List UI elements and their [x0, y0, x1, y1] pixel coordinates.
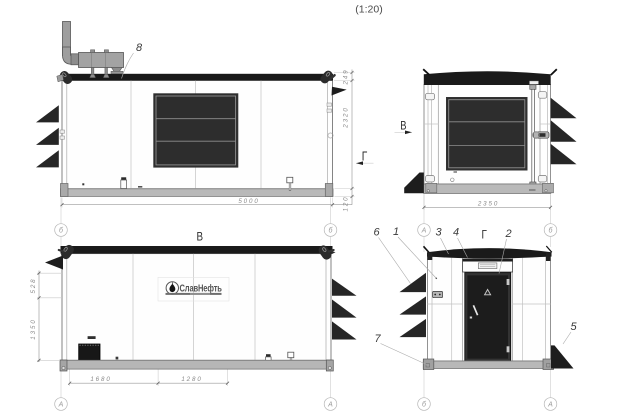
svg-text:528: 528	[30, 277, 37, 293]
svg-text:2350: 2350	[477, 200, 499, 207]
svg-text:СлавНефть: СлавНефть	[180, 282, 223, 293]
svg-text:В: В	[197, 231, 204, 244]
svg-text:А: А	[421, 228, 427, 235]
svg-text:1: 1	[393, 226, 399, 238]
svg-text:1680: 1680	[90, 376, 111, 383]
svg-text:1350: 1350	[30, 318, 37, 339]
svg-text:2320: 2320	[343, 106, 350, 128]
svg-text:8: 8	[136, 42, 143, 54]
svg-text:А: А	[58, 402, 64, 409]
svg-text:1280: 1280	[181, 376, 202, 383]
svg-text:5: 5	[570, 321, 577, 333]
svg-text:Г: Г	[482, 229, 487, 242]
svg-text:5000: 5000	[238, 198, 259, 205]
svg-text:4: 4	[453, 227, 459, 239]
svg-text:А: А	[327, 402, 333, 409]
svg-text:7: 7	[374, 333, 381, 345]
svg-text:(1:20): (1:20)	[355, 4, 382, 16]
svg-text:120: 120	[343, 195, 350, 211]
svg-text:249: 249	[343, 68, 350, 85]
svg-text:3: 3	[435, 227, 442, 239]
svg-text:А: А	[547, 402, 553, 409]
svg-text:2: 2	[504, 228, 511, 240]
svg-text:6: 6	[373, 227, 380, 239]
